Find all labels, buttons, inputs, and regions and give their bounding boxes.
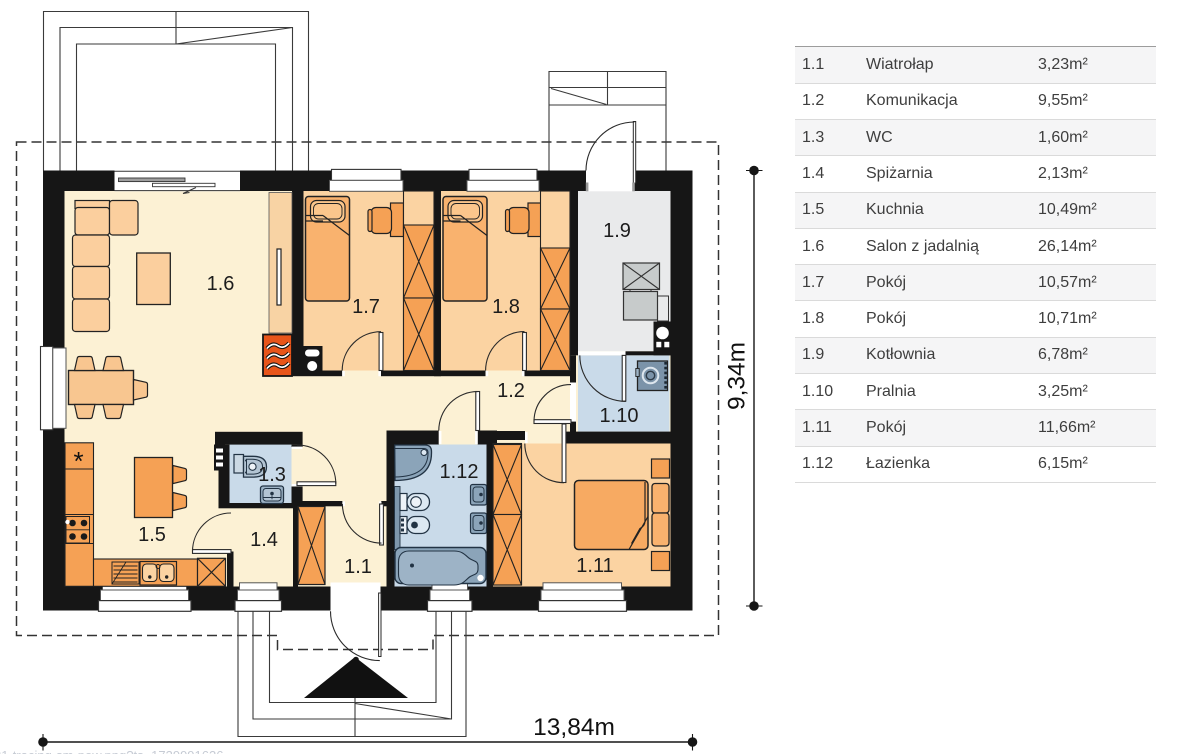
svg-text:1.12: 1.12 <box>440 461 479 483</box>
svg-text:*: * <box>73 446 83 476</box>
svg-text:1.1: 1.1 <box>344 556 372 578</box>
svg-text:1.2: 1.2 <box>497 380 525 402</box>
svg-text:1.9: 1.9 <box>603 220 631 242</box>
svg-text:9,34m: 9,34m <box>724 342 751 410</box>
svg-text:1.7: 1.7 <box>352 296 380 318</box>
svg-text:13,84m: 13,84m <box>533 714 615 741</box>
svg-text:1.4: 1.4 <box>250 529 278 551</box>
svg-text:1.8: 1.8 <box>492 296 520 318</box>
svg-text:1.3: 1.3 <box>258 464 286 486</box>
svg-text:1.10: 1.10 <box>600 405 639 427</box>
svg-text:1.11: 1.11 <box>576 555 613 577</box>
svg-text:1.5: 1.5 <box>138 524 166 546</box>
svg-text:1.6: 1.6 <box>207 273 235 295</box>
